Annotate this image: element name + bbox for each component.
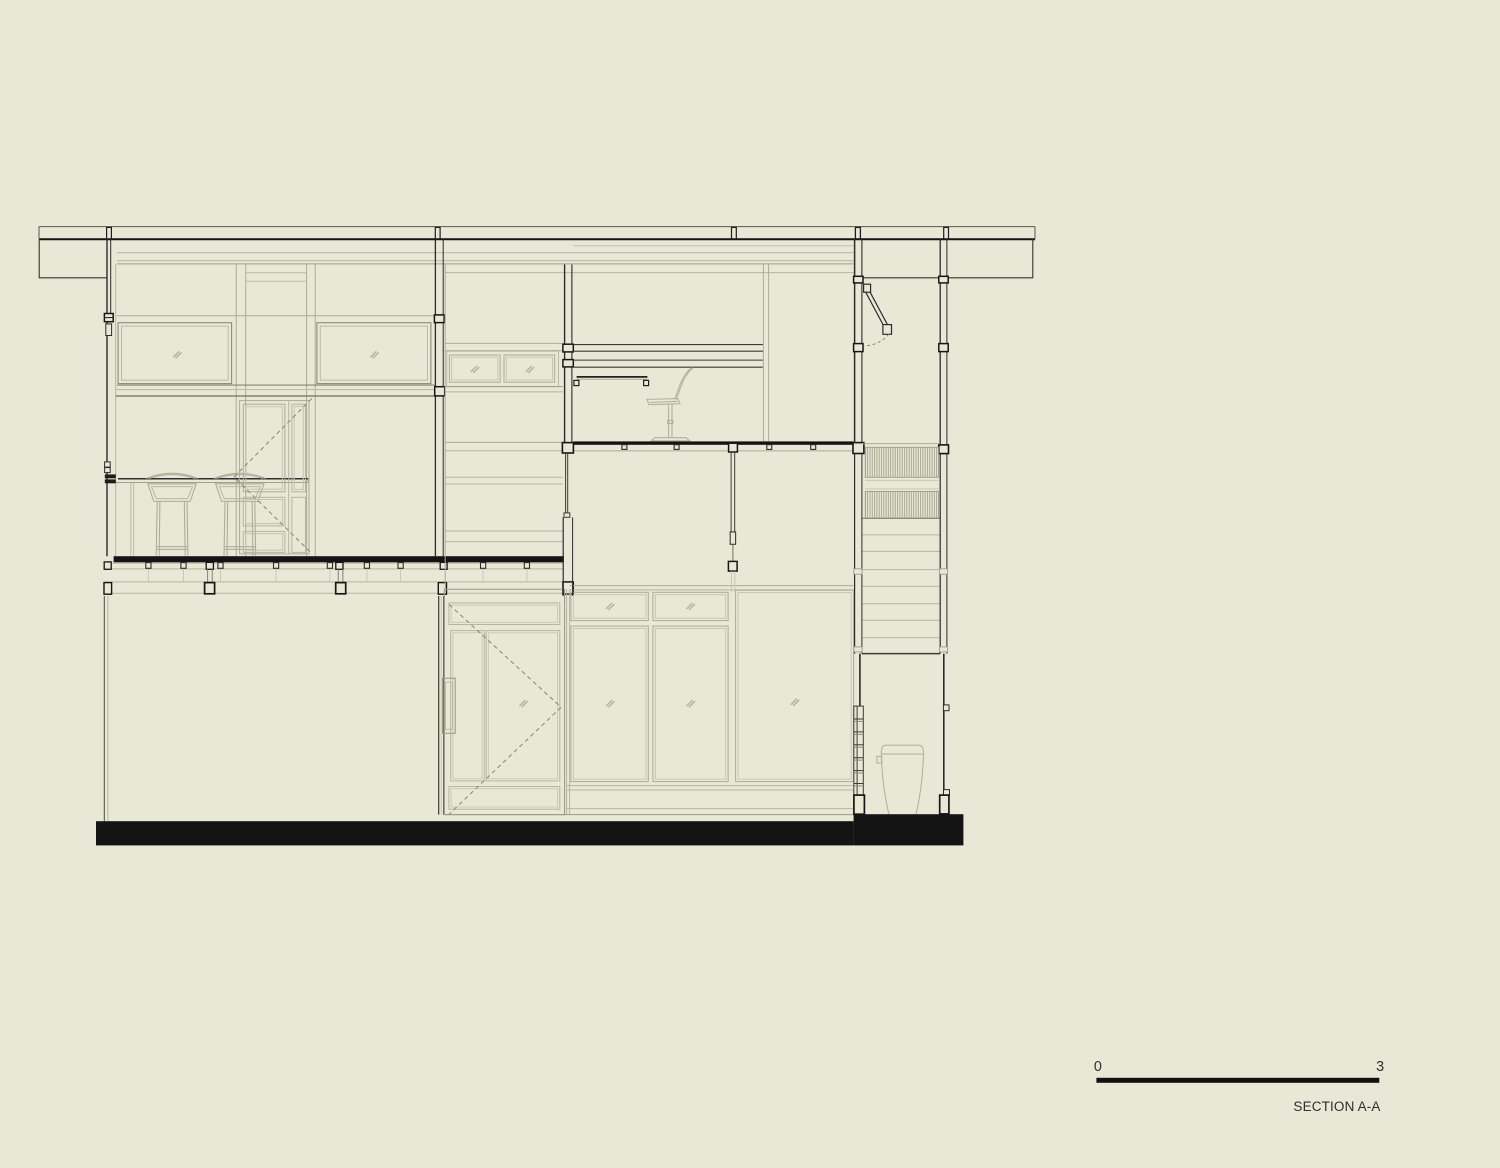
svg-text:3: 3 (1376, 1059, 1384, 1075)
svg-text:0: 0 (1094, 1059, 1102, 1075)
svg-text:SECTION A-A: SECTION A-A (1293, 1099, 1380, 1114)
